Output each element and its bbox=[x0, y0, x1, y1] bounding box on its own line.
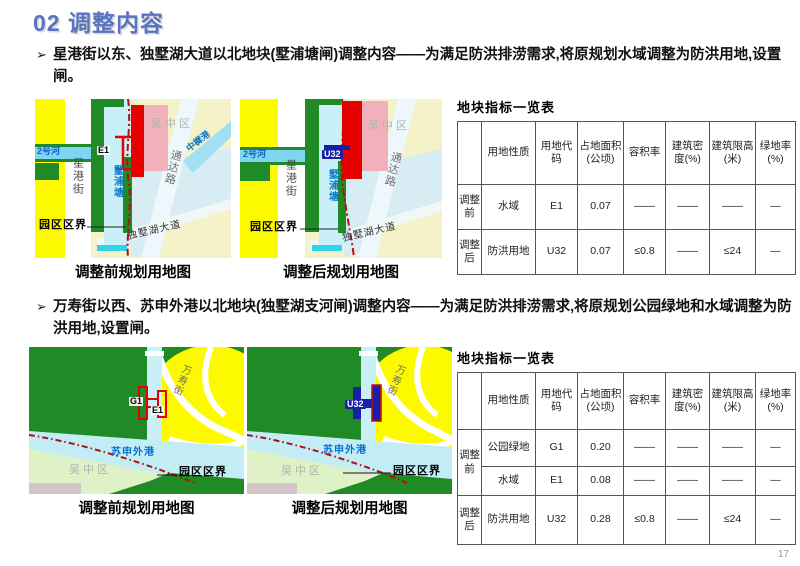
phase-cell: 调整后 bbox=[458, 230, 482, 275]
phase-cell: 调整前 bbox=[458, 430, 482, 496]
header-density: 建筑密度(%) bbox=[666, 122, 710, 185]
green-cell: — bbox=[756, 185, 796, 230]
sushen-waterway-label: 苏申外港 bbox=[111, 448, 155, 459]
area-cell: 0.07 bbox=[578, 230, 624, 275]
gate-marker-label: E1 bbox=[97, 146, 110, 155]
green-cell: — bbox=[756, 467, 796, 496]
park-boundary-label: 园区区界 bbox=[250, 222, 298, 234]
page-number: 17 bbox=[778, 549, 789, 560]
table-row: 调整前 水域 E1 0.07 —— —— —— — bbox=[458, 185, 796, 230]
sushen-waterway-label: 苏申外港 bbox=[323, 446, 367, 457]
code-cell: E1 bbox=[536, 185, 578, 230]
nature-cell: 水域 bbox=[482, 467, 536, 496]
map-after-plot2: U32 万寿街 苏申外港 吴中区 园区区界 bbox=[247, 347, 452, 494]
green-cell: — bbox=[756, 230, 796, 275]
caption-before-1: 调整前规划用地图 bbox=[35, 261, 231, 282]
shuputang-label: 墅浦塘 bbox=[111, 165, 122, 198]
gate-marker-e-label: E1 bbox=[151, 406, 164, 415]
far-cell: ≤0.8 bbox=[624, 496, 666, 545]
caption-before-2: 调整前规划用地图 bbox=[29, 497, 244, 518]
area-cell: 0.08 bbox=[578, 467, 624, 496]
far-cell: ≤0.8 bbox=[624, 230, 666, 275]
channel-zone bbox=[147, 347, 162, 447]
shuputang-label: 墅浦塘 bbox=[326, 169, 337, 202]
street-xinggang-label: 星港街 bbox=[71, 157, 83, 196]
table-row: 水域 E1 0.08 —— —— —— — bbox=[458, 467, 796, 496]
park-boundary-label: 园区区界 bbox=[39, 220, 87, 232]
gate-marker-label: U32 bbox=[345, 400, 366, 409]
river2-label: 2号河 bbox=[243, 150, 266, 159]
table-row: 调整前 公园绿地 G1 0.20 —— —— —— — bbox=[458, 430, 796, 467]
table-row: 调整后 防洪用地 U32 0.07 ≤0.8 —— ≤24 — bbox=[458, 230, 796, 275]
header-green: 绿地率(%) bbox=[756, 373, 796, 430]
area-cell: 0.20 bbox=[578, 430, 624, 467]
caption-after-2: 调整后规划用地图 bbox=[247, 497, 452, 518]
pink-block bbox=[362, 101, 388, 171]
far-cell: —— bbox=[624, 430, 666, 467]
map-before-plot2: G1 E1 万寿街 苏申外港 吴中区 园区区界 bbox=[29, 347, 244, 494]
density-cell: —— bbox=[666, 430, 710, 467]
page-title: 02 调整内容 bbox=[33, 4, 164, 38]
header-code: 用地代码 bbox=[536, 122, 578, 185]
height-cell: —— bbox=[710, 430, 756, 467]
bullet-arrow-icon: ➢ bbox=[36, 297, 47, 317]
height-cell: —— bbox=[710, 185, 756, 230]
height-cell: ≤24 bbox=[710, 230, 756, 275]
map-after-plot1: 吴中区 2号河 星港街 墅浦塘 U32 通达路 独墅湖大道 园区区界 bbox=[240, 99, 442, 258]
header-nature: 用地性质 bbox=[482, 122, 536, 185]
indicator-table-1: 用地性质 用地代码 占地面积(公顷) 容积率 建筑密度(%) 建筑限高(米) 绿… bbox=[457, 121, 796, 275]
header-height: 建筑限高(米) bbox=[710, 373, 756, 430]
tan-block bbox=[29, 483, 81, 494]
header-blank bbox=[458, 122, 482, 185]
indicator-table-1-box: 地块指标一览表 用地性质 用地代码 占地面积(公顷) 容积率 建筑密度(%) 建… bbox=[457, 97, 797, 275]
gate-marker-g-label: G1 bbox=[129, 397, 143, 406]
area-cell: 0.07 bbox=[578, 185, 624, 230]
code-cell: E1 bbox=[536, 467, 578, 496]
header-code: 用地代码 bbox=[536, 373, 578, 430]
slide: 02 调整内容 ➢ 星港街以东、独墅湖大道以北地块(墅浦塘闸)调整内容——为满足… bbox=[0, 0, 800, 566]
green-cell: — bbox=[756, 496, 796, 545]
street-xinggang-label: 星港街 bbox=[284, 159, 296, 198]
table-row: 调整后 防洪用地 U32 0.28 ≤0.8 —— ≤24 — bbox=[458, 496, 796, 545]
area-cell: 0.28 bbox=[578, 496, 624, 545]
green-cell: — bbox=[756, 430, 796, 467]
red-block bbox=[342, 101, 362, 179]
nature-cell: 水域 bbox=[482, 185, 536, 230]
phase-cell: 调整前 bbox=[458, 185, 482, 230]
header-height: 建筑限高(米) bbox=[710, 122, 756, 185]
code-cell: G1 bbox=[536, 430, 578, 467]
district-label: 吴中区 bbox=[281, 466, 323, 478]
park-boundary-label: 园区区界 bbox=[179, 467, 227, 479]
tan-block bbox=[247, 483, 297, 494]
nature-cell: 防洪用地 bbox=[482, 230, 536, 275]
nature-cell: 公园绿地 bbox=[482, 430, 536, 467]
district-label: 吴中区 bbox=[151, 119, 193, 131]
code-cell: U32 bbox=[536, 230, 578, 275]
nature-cell: 防洪用地 bbox=[482, 496, 536, 545]
code-cell: U32 bbox=[536, 496, 578, 545]
bullet-2-text: 万寿街以西、苏申外港以北地块(独墅湖支河闸)调整内容——为满足防洪排涝需求,将原… bbox=[53, 299, 792, 337]
bullet-2: ➢ 万寿街以西、苏申外港以北地块(独墅湖支河闸)调整内容——为满足防洪排涝需求,… bbox=[36, 297, 795, 341]
river2-label: 2号河 bbox=[37, 147, 60, 156]
header-nature: 用地性质 bbox=[482, 373, 536, 430]
header-green: 绿地率(%) bbox=[756, 122, 796, 185]
pink-block bbox=[144, 105, 168, 171]
district-label: 吴中区 bbox=[368, 121, 410, 133]
header-blank bbox=[458, 373, 482, 430]
far-cell: —— bbox=[624, 467, 666, 496]
density-cell: —— bbox=[666, 496, 710, 545]
caption-after-1: 调整后规划用地图 bbox=[240, 261, 442, 282]
header-area: 占地面积(公顷) bbox=[578, 122, 624, 185]
table-1-title: 地块指标一览表 bbox=[457, 97, 797, 116]
bullet-1-text: 星港街以东、独墅湖大道以北地块(墅浦塘闸)调整内容——为满足防洪排涝需求,将原规… bbox=[53, 47, 781, 85]
far-cell: —— bbox=[624, 185, 666, 230]
density-cell: —— bbox=[666, 185, 710, 230]
bullet-arrow-icon: ➢ bbox=[36, 45, 47, 65]
header-far: 容积率 bbox=[624, 122, 666, 185]
district-label: 吴中区 bbox=[69, 465, 111, 477]
indicator-table-2-box: 地块指标一览表 用地性质 用地代码 占地面积(公顷) 容积率 建筑密度(%) 建… bbox=[457, 348, 797, 545]
bullet-1: ➢ 星港街以东、独墅湖大道以北地块(墅浦塘闸)调整内容——为满足防洪排涝需求,将… bbox=[36, 45, 795, 89]
map-before-plot1: 吴中区 2号河 星港街 墅浦塘 E1 通达路 中樨港 独墅湖大道 园区区界 bbox=[35, 99, 231, 258]
indicator-table-2: 用地性质 用地代码 占地面积(公顷) 容积率 建筑密度(%) 建筑限高(米) 绿… bbox=[457, 372, 796, 545]
height-cell: —— bbox=[710, 467, 756, 496]
green-strip bbox=[305, 99, 319, 232]
density-cell: —— bbox=[666, 230, 710, 275]
table-2-title: 地块指标一览表 bbox=[457, 348, 797, 367]
density-cell: —— bbox=[666, 467, 710, 496]
height-cell: ≤24 bbox=[710, 496, 756, 545]
header-density: 建筑密度(%) bbox=[666, 373, 710, 430]
park-boundary-label: 园区区界 bbox=[393, 466, 441, 478]
gate-marker-label: U32 bbox=[322, 150, 343, 159]
header-far: 容积率 bbox=[624, 373, 666, 430]
red-block bbox=[131, 105, 144, 177]
green-strip bbox=[91, 99, 104, 232]
phase-cell: 调整后 bbox=[458, 496, 482, 545]
header-area: 占地面积(公顷) bbox=[578, 373, 624, 430]
